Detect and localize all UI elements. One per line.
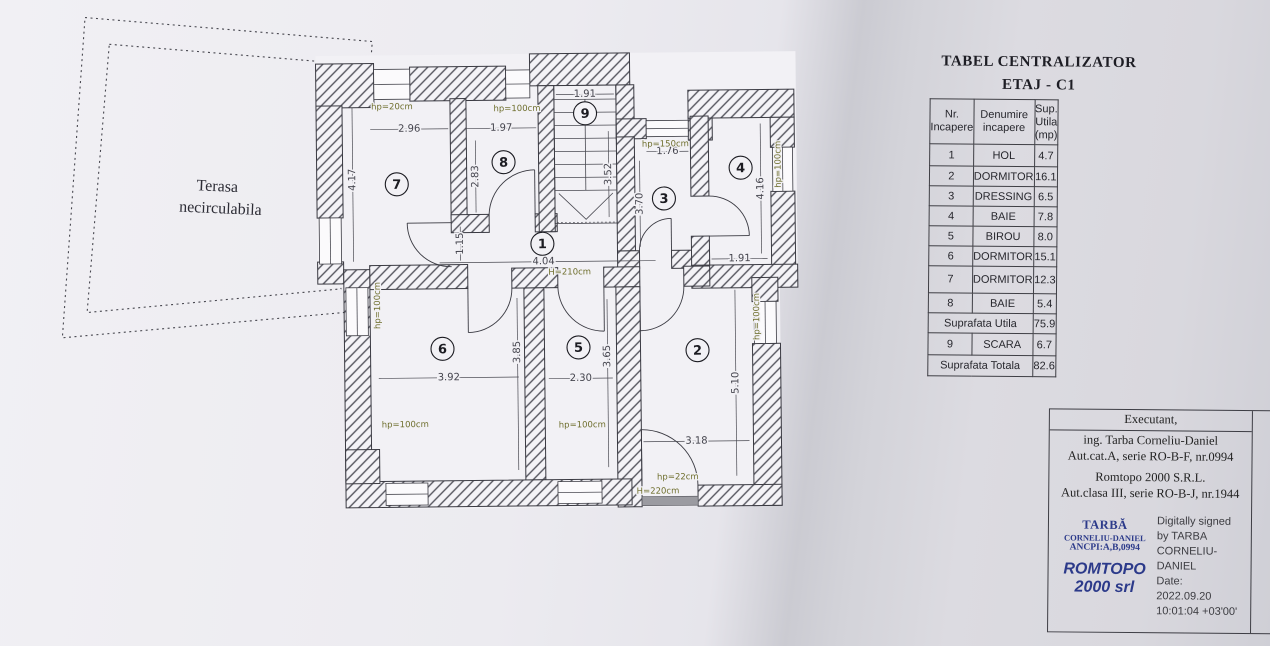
cell-nr: 5: [929, 226, 973, 246]
cell-area: 12.3: [1033, 267, 1057, 294]
header-sup-utila: Sup. Utila (mp): [1034, 100, 1058, 145]
hp-room4-right: hp=100cm: [773, 141, 783, 188]
sig-line: Date:: [1156, 574, 1252, 590]
dim-room3-height: 3.70: [634, 193, 645, 215]
dim-room4-width: 1.91: [728, 253, 750, 264]
dim-room2-height: 5.10: [730, 372, 741, 394]
dim-room8-height: 2.83: [470, 165, 481, 187]
table-row: 1 HOL 4.7: [930, 144, 1058, 167]
stamp-firm1: ROMTOPO: [1052, 560, 1156, 579]
terrace-label-line1: Terasa: [196, 177, 238, 196]
cell-area: 15.1: [1033, 247, 1057, 267]
stamp-ancpi: ANCPI:A,B,0994: [1053, 542, 1157, 553]
cell-name: BIROU: [973, 226, 1034, 247]
header-nr-incapere: Nr. Incapere: [930, 99, 974, 144]
cell-name: SCARA: [972, 333, 1033, 356]
cell-nr: 1: [930, 144, 974, 166]
suprafata-utila-label: Suprafata Utila: [928, 313, 1033, 334]
executant-box: Executant, ing. Tarba Corneliu-Daniel Au…: [1047, 408, 1270, 634]
room-number-1: 1: [531, 232, 554, 255]
stamp-name2: CORNELIU-DANIEL: [1053, 532, 1157, 543]
table-row: 3 DRESSING 6.5: [929, 186, 1057, 207]
svg-text:9: 9: [580, 107, 589, 122]
svg-text:2: 2: [693, 344, 702, 359]
svg-text:4: 4: [736, 161, 745, 176]
table-row: 4 BAIE 7.8: [929, 206, 1057, 227]
svg-text:6: 6: [438, 342, 447, 357]
cell-name: DORMITOR: [972, 266, 1033, 294]
table-header-row: Nr. Incapere Denumire incapere Sup. Util…: [930, 99, 1059, 145]
dim-room6-height: 3.85: [512, 341, 523, 363]
stamp-name: TARBĂ: [1053, 517, 1157, 533]
table-row: 6 DORMITOR 15.1: [929, 246, 1057, 267]
sig-line: CORNELIU-: [1157, 544, 1253, 560]
hp-room7-top: hp=20cm: [371, 102, 413, 112]
dim-hall-height: 1.15: [455, 232, 466, 254]
svg-text:7: 7: [392, 178, 401, 193]
cell-area: 6.7: [1032, 334, 1056, 356]
floor-plan: Terasa necirculabila: [0, 0, 820, 646]
sig-line: by TARBA: [1157, 529, 1253, 545]
cell-area: 16.1: [1034, 167, 1058, 187]
hp-room6-left: hp=100cm: [373, 282, 383, 329]
svg-text:5: 5: [574, 341, 583, 356]
executant-company: Romtopo 2000 S.R.L.: [1049, 468, 1251, 486]
dim-room6-width: 3.92: [438, 372, 460, 383]
hp-room6-bottom: hp=100cm: [382, 420, 429, 430]
executant-details: ing. Tarba Corneliu-Daniel Aut.cat.A, se…: [1049, 431, 1252, 502]
sig-line: 10:01:04 +03'00': [1156, 604, 1252, 620]
table-row: 2 DORMITOR 16.1: [929, 166, 1057, 187]
dim-room2-width: 3.18: [685, 436, 707, 447]
svg-text:8: 8: [499, 156, 508, 171]
dim-room5-width: 2.30: [570, 373, 592, 384]
sig-line: 2022.09.20: [1156, 589, 1252, 605]
cell-nr: 9: [928, 333, 972, 355]
balcony-sill: [642, 496, 698, 506]
svg-text:1: 1: [538, 237, 547, 252]
dim-room4-height: 4.16: [755, 177, 766, 199]
terrace-label-line2: necirculabila: [179, 199, 262, 219]
digital-signature-text: Digitally signed by TARBA CORNELIU- DANI…: [1156, 514, 1253, 620]
table-title: TABEL CENTRALIZATOR ETAJ - C1: [928, 50, 1150, 98]
cell-nr: 6: [929, 246, 973, 266]
cell-nr: 3: [929, 186, 973, 206]
cell-area: 4.7: [1034, 145, 1058, 167]
digital-stamp: TARBĂ CORNELIU-DANIEL ANCPI:A,B,0994 ROM…: [1052, 517, 1157, 597]
cell-area: 6.5: [1034, 187, 1058, 207]
executant-auth: Aut.cat.A, serie RO-B-F, nr.0994: [1049, 447, 1251, 465]
table-row: 8 BAIE 5.4: [928, 293, 1056, 314]
cell-nr: 2: [929, 166, 973, 186]
h-hall-door: H=210cm: [548, 267, 591, 277]
dim-stairs-height: 3.52: [603, 163, 614, 185]
terrace-label: Terasa necirculabila: [179, 177, 263, 219]
table-row: 7 DORMITOR 12.3: [928, 266, 1056, 294]
room-number-9: 9: [573, 102, 596, 125]
sig-line: Digitally signed: [1157, 514, 1253, 530]
cell-nr: 4: [929, 206, 973, 226]
dim-room5-height: 3.65: [602, 345, 613, 367]
dim-left-wall: 4.17: [347, 169, 358, 191]
cell-name: DORMITOR: [973, 246, 1034, 267]
sig-line: DANIEL: [1157, 559, 1253, 575]
dim-hall-width: 4.04: [532, 256, 554, 267]
cell-area: 7.8: [1034, 207, 1058, 227]
suprafata-utila-row: Suprafata Utila 75.9: [928, 313, 1056, 334]
hp-room2-right: hp=100cm: [752, 293, 762, 340]
header-denumire-incapere: Denumire incapere: [974, 99, 1035, 145]
dim-room8-width: 1.97: [490, 123, 512, 134]
svg-text:3: 3: [659, 192, 668, 207]
cell-name: BAIE: [973, 206, 1034, 227]
scanned-document: Terasa necirculabila: [0, 0, 1270, 646]
executant-name: ing. Tarba Corneliu-Daniel: [1050, 431, 1252, 449]
hp-room3-top: hp=150cm: [642, 139, 689, 149]
dim-room7-width: 2.96: [398, 124, 420, 135]
suprafata-totala-value: 82.6: [1032, 356, 1056, 377]
h-balcony-door: H=220cm: [637, 486, 680, 496]
table-row: 5 BIROU 8.0: [929, 226, 1057, 247]
hp-room5-bottom: hp=100cm: [559, 420, 606, 430]
cell-name: HOL: [973, 144, 1034, 167]
dim-stairs-width: 1.91: [574, 89, 596, 100]
cell-area: 8.0: [1033, 227, 1057, 247]
suprafata-totala-row: Suprafata Totala 82.6: [928, 355, 1056, 377]
table-title-line2: ETAJ - C1: [928, 73, 1150, 98]
cell-area: 5.4: [1033, 294, 1057, 314]
cell-name: DRESSING: [973, 186, 1034, 207]
hp-room8-top: hp=100cm: [493, 104, 540, 114]
suprafata-totala-label: Suprafata Totala: [928, 355, 1033, 377]
executant-header: Executant,: [1050, 409, 1252, 432]
cell-nr: 7: [928, 266, 972, 293]
scara-row: 9 SCARA 6.7: [928, 333, 1056, 356]
cell-nr: 8: [928, 293, 972, 313]
executant-company-auth: Aut.clasa III, serie RO-B-J, nr.1944: [1049, 484, 1251, 502]
cell-name: DORMITOR: [973, 166, 1034, 187]
stamp-firm2: 2000 srl: [1052, 578, 1156, 597]
hp-balcony: hp=22cm: [657, 472, 699, 482]
centralizer-table: Nr. Incapere Denumire incapere Sup. Util…: [927, 98, 1059, 377]
suprafata-utila-value: 75.9: [1033, 314, 1057, 334]
table-title-line1: TABEL CENTRALIZATOR: [928, 50, 1150, 75]
cell-name: BAIE: [972, 293, 1033, 314]
